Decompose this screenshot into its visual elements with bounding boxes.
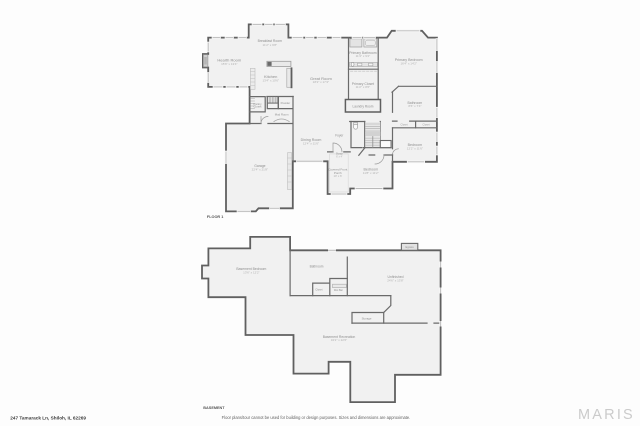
svg-text:Powder: Powder [281, 101, 291, 105]
svg-text:16'4" x 14'2": 16'4" x 14'2" [400, 61, 416, 65]
svg-text:24'6" x 13'8": 24'6" x 13'8" [387, 279, 403, 283]
svg-text:15'6" x 13'4": 15'6" x 13'4" [221, 62, 237, 66]
svg-text:247 Tamarack Ln, Shiloh, IL 62: 247 Tamarack Ln, Shiloh, IL 62269 [10, 416, 86, 421]
svg-text:Floor plans/tour cannot be use: Floor plans/tour cannot be used for buil… [222, 415, 411, 420]
svg-text:FLOOR 1: FLOOR 1 [207, 215, 223, 219]
svg-text:MARIS: MARIS [578, 407, 635, 423]
svg-text:12'2" x 11'6": 12'2" x 11'6" [407, 146, 423, 150]
svg-text:BASEMENT: BASEMENT [203, 406, 225, 410]
svg-text:10' x 6': 10' x 6' [333, 174, 342, 178]
svg-text:13'6" x 12'2": 13'6" x 12'2" [243, 271, 259, 275]
svg-text:Wet Bar: Wet Bar [334, 289, 343, 292]
svg-text:13'4" x 10'6": 13'4" x 10'6" [262, 79, 278, 83]
svg-text:12'4" x 11'6": 12'4" x 11'6" [303, 141, 319, 145]
svg-text:Egress: Egress [406, 245, 415, 249]
svg-text:Foyer: Foyer [335, 133, 344, 137]
svg-text:6' x 4': 6' x 4' [336, 155, 343, 158]
svg-text:Bathroom: Bathroom [310, 265, 324, 269]
svg-text:11'2" x 9'8": 11'2" x 9'8" [263, 43, 278, 47]
svg-text:Storage: Storage [362, 316, 372, 320]
svg-text:8'6" x 7'4": 8'6" x 7'4" [408, 104, 421, 108]
svg-text:11'2" x 8'6": 11'2" x 8'6" [356, 85, 371, 89]
svg-text:22'4" x 21'8": 22'4" x 21'8" [252, 168, 268, 172]
svg-text:11'4" x 9'2": 11'4" x 9'2" [356, 54, 371, 58]
svg-text:Closet: Closet [400, 124, 407, 127]
svg-text:Mud Room: Mud Room [275, 112, 289, 116]
svg-text:Closet: Closet [422, 124, 429, 127]
svg-text:11'8" x 11'2": 11'8" x 11'2" [363, 171, 379, 175]
svg-text:34'2" x 22'6": 34'2" x 22'6" [331, 338, 347, 342]
svg-text:Laundry Room: Laundry Room [352, 104, 373, 108]
svg-text:Closet: Closet [315, 289, 322, 292]
svg-text:18'2" x 17'4": 18'2" x 17'4" [313, 80, 329, 84]
svg-text:Closet: Closet [254, 105, 262, 109]
